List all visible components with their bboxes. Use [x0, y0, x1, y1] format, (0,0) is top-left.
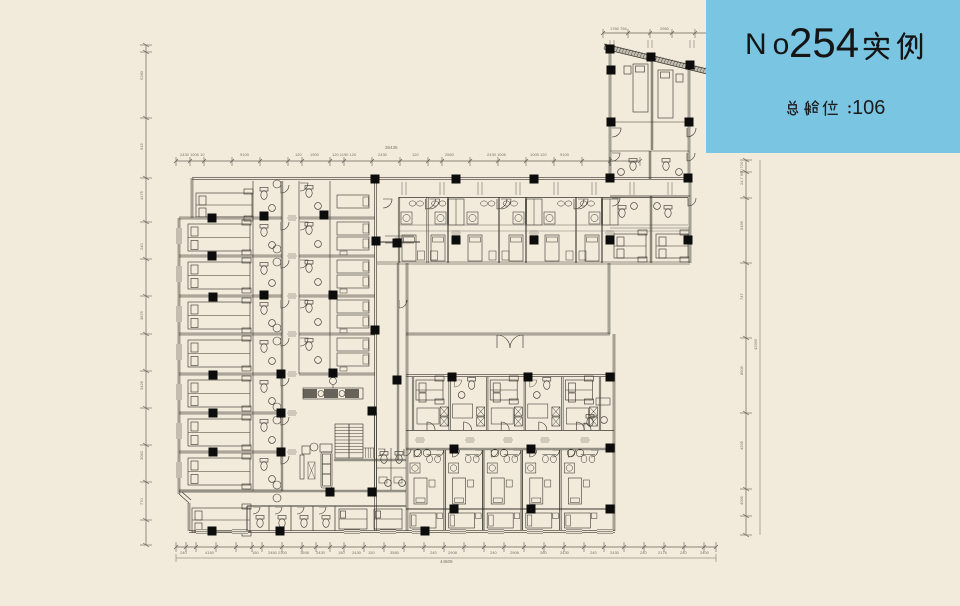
- svg-text:770: 770: [139, 498, 144, 505]
- svg-text:240: 240: [680, 550, 687, 555]
- svg-text:2430: 2430: [560, 550, 570, 555]
- svg-text:3580: 3580: [390, 550, 400, 555]
- svg-text:2400: 2400: [700, 550, 710, 555]
- svg-text:240: 240: [490, 550, 497, 555]
- svg-text:240: 240: [180, 550, 187, 555]
- svg-text:5280: 5280: [139, 70, 144, 80]
- svg-text:8905: 8905: [739, 365, 744, 375]
- svg-text:2430: 2430: [316, 550, 326, 555]
- svg-text:2450 2300: 2450 2300: [268, 550, 288, 555]
- svg-text:36436: 36436: [385, 145, 398, 150]
- svg-text:1760 756: 1760 756: [610, 26, 627, 31]
- svg-text:24.7 990 720: 24.7 990 720: [739, 161, 744, 185]
- svg-text:120: 120: [412, 152, 419, 157]
- svg-text:42995: 42995: [753, 338, 758, 350]
- svg-text:1005 120: 1005 120: [530, 152, 547, 157]
- svg-text:915: 915: [139, 143, 144, 150]
- svg-text:1698: 1698: [300, 550, 310, 555]
- svg-text:4175: 4175: [139, 190, 144, 200]
- svg-text:5495: 5495: [739, 220, 744, 230]
- svg-text:240: 240: [430, 550, 437, 555]
- svg-text:2430: 2430: [610, 550, 620, 555]
- svg-text:120: 120: [295, 152, 302, 157]
- svg-text:4295: 4295: [739, 440, 744, 450]
- svg-text:9100: 9100: [240, 152, 250, 157]
- svg-text:2908: 2908: [510, 550, 520, 555]
- svg-text:44609: 44609: [440, 559, 453, 564]
- svg-text:4150: 4150: [205, 550, 215, 555]
- svg-text:2430: 2430: [378, 152, 388, 157]
- svg-text:260: 260: [540, 550, 547, 555]
- svg-text:747: 747: [739, 293, 744, 300]
- svg-text:120 1190 120: 120 1190 120: [332, 152, 357, 157]
- svg-text:9100: 9100: [560, 152, 570, 157]
- svg-text:2960: 2960: [660, 26, 670, 31]
- svg-text:150: 150: [368, 550, 375, 555]
- svg-text:2560: 2560: [445, 152, 455, 157]
- svg-text:150: 150: [338, 550, 345, 555]
- svg-text:2430 1006: 2430 1006: [487, 152, 507, 157]
- svg-text:3875: 3875: [139, 310, 144, 320]
- svg-text:240: 240: [139, 243, 144, 250]
- svg-text:2176: 2176: [658, 550, 668, 555]
- svg-text:3050: 3050: [139, 450, 144, 460]
- svg-text:2430 1006 10: 2430 1006 10: [180, 152, 205, 157]
- svg-text:150: 150: [252, 550, 259, 555]
- svg-text:3426: 3426: [139, 380, 144, 390]
- svg-text:1900: 1900: [310, 152, 320, 157]
- svg-text:2430: 2430: [352, 550, 362, 555]
- svg-text:4095: 4095: [739, 495, 744, 505]
- svg-text:2908: 2908: [448, 550, 458, 555]
- svg-text:240: 240: [640, 550, 647, 555]
- svg-text:240: 240: [590, 550, 597, 555]
